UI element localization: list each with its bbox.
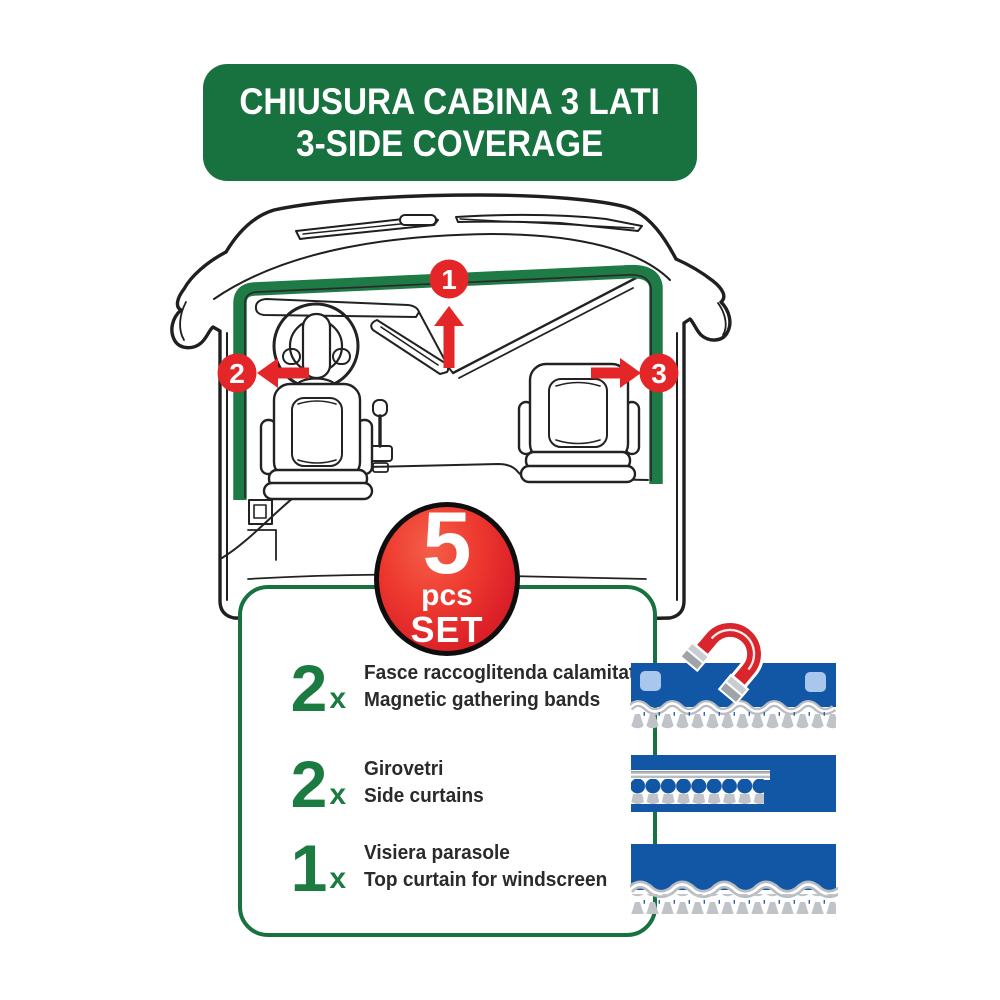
set-label: SET (410, 612, 483, 648)
curtain-scallop-trim (631, 779, 764, 805)
infographic-canvas: CHIUSURA CABINA 3 LATI 3-SIDE COVERAGE (0, 0, 1000, 1000)
title-banner: CHIUSURA CABINA 3 LATI 3-SIDE COVERAGE (203, 64, 697, 181)
quantity-number: 2 (291, 757, 328, 811)
title-line-english: 3-SIDE COVERAGE (296, 124, 603, 164)
side-curtain-illustration (630, 748, 838, 818)
driver-seat (261, 384, 372, 499)
item-label-italian: Fasce raccoglitenda calamitate (364, 659, 646, 686)
position-markers: 1 2 3 (218, 260, 679, 393)
quantity-number: 1 (291, 841, 328, 895)
magnet-pocket-right (805, 672, 826, 692)
quantity: 1 x (260, 841, 346, 895)
marker-1-number: 1 (441, 264, 457, 295)
item-label-italian: Visiera parasole (364, 839, 607, 866)
quantity-number: 2 (291, 661, 328, 715)
marker-3-number: 3 (651, 358, 667, 389)
band-fringe-tassels (631, 712, 836, 732)
magnetic-band-illustration (630, 612, 838, 734)
item-labels: Fasce raccoglitenda calamitate Magnetic … (364, 659, 667, 713)
rail-bar-shadow (631, 771, 770, 772)
pieces-count: 5 (423, 508, 472, 578)
curtain-fringe-tassels (631, 894, 836, 914)
quantity: 2 x (260, 757, 346, 811)
kit-item-magnetic-bands: 2 x Fasce raccoglitenda calamitate Magne… (260, 659, 667, 715)
marker-2-number: 2 (229, 358, 245, 389)
item-label-english: Magnetic gathering bands (364, 686, 646, 713)
times-symbol: x (329, 780, 346, 810)
kit-item-windscreen-curtain: 1 x Visiera parasole Top curtain for win… (260, 839, 626, 895)
times-symbol: x (329, 864, 346, 894)
item-labels: Visiera parasole Top curtain for windscr… (364, 839, 626, 893)
title-line-italian: CHIUSURA CABINA 3 LATI (240, 82, 661, 122)
item-label-english: Top curtain for windscreen (364, 866, 607, 893)
magnet-pocket-left (640, 671, 661, 691)
kit-item-side-curtains: 2 x Girovetri Side curtains (260, 755, 493, 811)
pieces-count-badge: 5 pcs SET (374, 502, 520, 656)
times-symbol: x (329, 684, 346, 714)
quantity: 2 x (260, 661, 346, 715)
item-label-english: Side curtains (364, 782, 484, 809)
item-label-italian: Girovetri (364, 755, 484, 782)
windscreen-curtain-illustration (630, 840, 838, 915)
item-labels: Girovetri Side curtains (364, 755, 493, 809)
rail-bar-highlight (631, 774, 770, 776)
pieces-unit: pcs (421, 581, 473, 611)
